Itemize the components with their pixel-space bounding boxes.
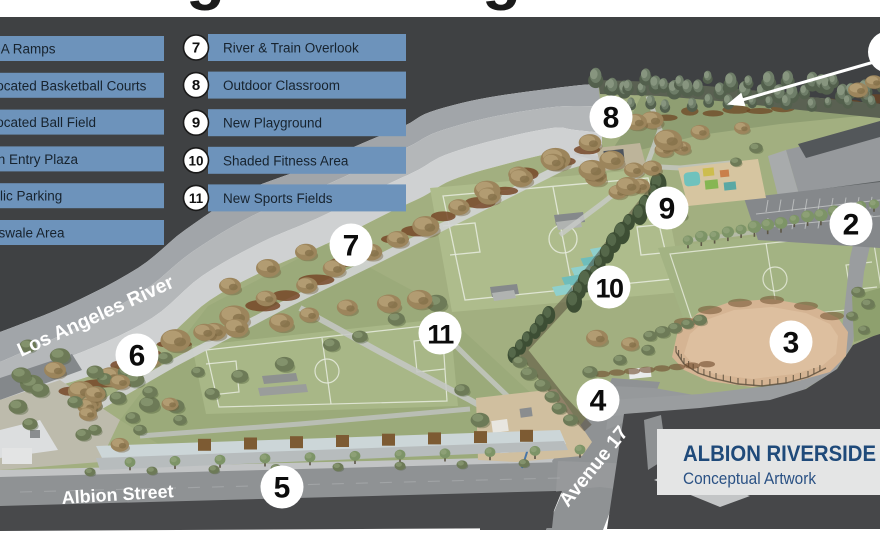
svg-text:11: 11: [427, 320, 454, 350]
svg-text:8: 8: [603, 102, 620, 135]
svg-text:New Sports Fields: New Sports Fields: [223, 191, 333, 206]
svg-text:ALBION RIVERSIDE: ALBION RIVERSIDE: [683, 441, 876, 466]
svg-text:5: 5: [274, 472, 291, 505]
svg-text:Relocated Basketball Courts: Relocated Basketball Courts: [0, 78, 147, 93]
svg-text:9: 9: [659, 193, 676, 226]
svg-text:10: 10: [188, 153, 203, 168]
svg-text:4: 4: [590, 385, 607, 418]
svg-text:Main Entry Plaza: Main Entry Plaza: [0, 152, 79, 167]
svg-text:g: g: [186, 0, 225, 11]
svg-text:Shaded Fitness Area: Shaded Fitness Area: [223, 153, 349, 168]
svg-text:New Playground: New Playground: [223, 116, 322, 131]
svg-text:8: 8: [192, 77, 200, 94]
svg-text:11: 11: [189, 191, 204, 206]
svg-text:Conceptual Artwork: Conceptual Artwork: [683, 470, 817, 488]
svg-text:10: 10: [595, 274, 623, 304]
svg-text:Public Parking: Public Parking: [0, 189, 62, 204]
svg-text:Outdoor Classroom: Outdoor Classroom: [223, 78, 340, 93]
svg-text:ADA Ramps: ADA Ramps: [0, 42, 56, 57]
svg-text:Bioswale Area: Bioswale Area: [0, 226, 65, 241]
svg-text:River & Train Overlook: River & Train Overlook: [223, 41, 359, 56]
svg-text:6: 6: [129, 340, 146, 373]
svg-text:9: 9: [192, 115, 200, 132]
svg-text:g: g: [482, 0, 521, 11]
svg-text:7: 7: [343, 230, 360, 263]
svg-text:2: 2: [843, 209, 860, 242]
svg-text:3: 3: [783, 327, 800, 360]
svg-text:7: 7: [192, 40, 200, 57]
svg-text:Relocated Ball Field: Relocated Ball Field: [0, 115, 96, 130]
